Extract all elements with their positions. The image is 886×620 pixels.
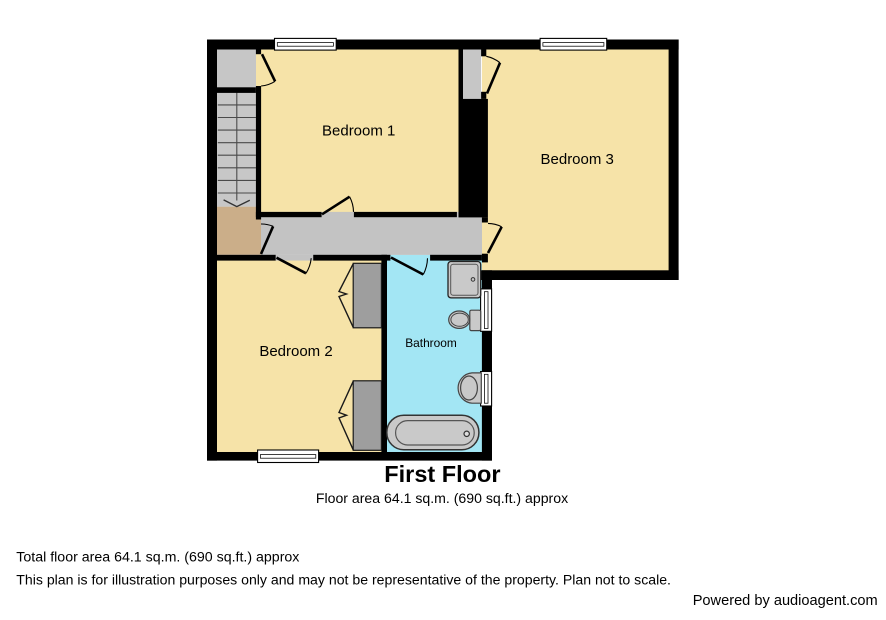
svg-text:Bedroom 1: Bedroom 1 xyxy=(322,123,395,140)
svg-text:Bedroom 2: Bedroom 2 xyxy=(259,343,332,360)
svg-text:This plan is for illustration: This plan is for illustration purposes o… xyxy=(16,572,671,588)
svg-text:Bedroom 3: Bedroom 3 xyxy=(541,151,614,168)
svg-text:First Floor: First Floor xyxy=(384,461,500,487)
svg-text:Bathroom: Bathroom xyxy=(405,336,457,350)
svg-text:Total floor area 64.1 sq.m. (6: Total floor area 64.1 sq.m. (690 sq.ft.)… xyxy=(16,549,299,565)
svg-text:Powered by audioagent.com: Powered by audioagent.com xyxy=(693,593,878,609)
svg-text:Floor area 64.1 sq.m. (690 sq.: Floor area 64.1 sq.m. (690 sq.ft.) appro… xyxy=(316,490,568,506)
